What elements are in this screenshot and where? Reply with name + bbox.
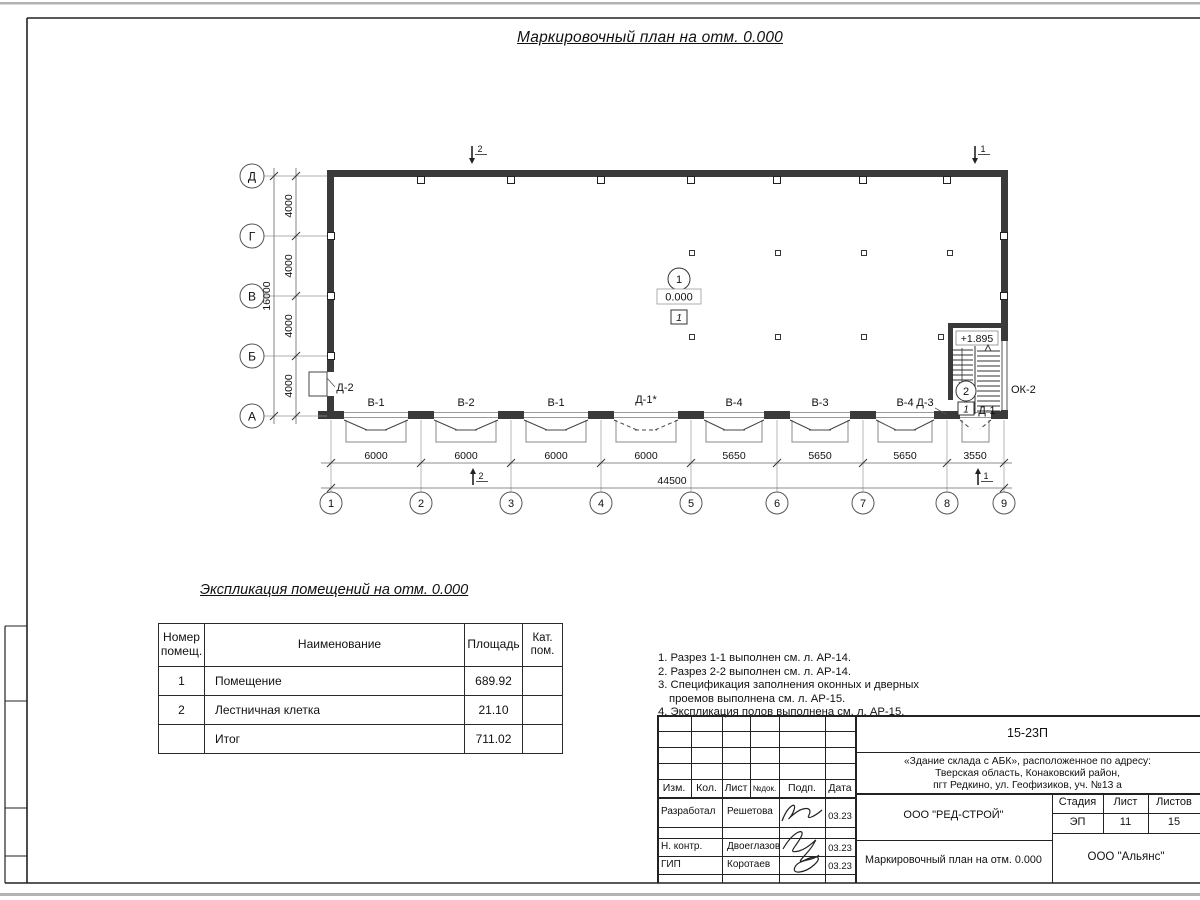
cell-name: Итог <box>205 725 465 754</box>
date-ncontrol: 03.23 <box>825 843 855 854</box>
svg-text:1: 1 <box>983 471 988 481</box>
window-sills <box>344 413 991 418</box>
axis-label: Г <box>249 230 256 244</box>
cell-name: Помещение <box>205 667 465 696</box>
axis-label: 9 <box>1001 498 1007 510</box>
note-line: 2. Разрез 2-2 выполнен см. л. АР-14. <box>658 666 919 680</box>
dim-text: 5650 <box>722 450 746 462</box>
axis-label: А <box>248 410 256 424</box>
role-ncontrol: Н. контр. <box>661 841 702 852</box>
dim-total-left: 16000 <box>261 281 273 310</box>
design-company: ООО "РЕД-СТРОЙ" <box>855 809 1052 821</box>
dim-text: 5650 <box>808 450 832 462</box>
cell-category <box>523 667 563 696</box>
col-list: Лист <box>722 782 750 794</box>
door-d1-label: Д-1 <box>978 405 995 417</box>
porch-d2 <box>309 372 327 396</box>
top-wall <box>327 170 1008 177</box>
project-address-line2: Тверская область, Конаковский район, <box>855 768 1200 779</box>
dim-text: 6000 <box>364 450 388 462</box>
room-floor-type: 1 <box>676 312 682 324</box>
axis-label: 8 <box>944 498 950 510</box>
room-table-title: Экспликация помещений на отм. 0.000 <box>200 582 468 598</box>
table-header-row: Номерпомещ. Наименование Площадь Кат.пом… <box>159 624 563 667</box>
svg-text:2: 2 <box>478 471 483 481</box>
signature-developed <box>782 805 822 821</box>
door-d3-label: Д-3 <box>916 397 933 409</box>
note-line: проемов выполнена см. л. АР-15. <box>658 693 919 707</box>
dim-text: 6000 <box>544 450 568 462</box>
date-gip: 03.23 <box>825 861 855 872</box>
doc-number: 15-23П <box>855 726 1200 740</box>
note-line: 1. Разрез 1-1 выполнен см. л. АР-14. <box>658 652 919 666</box>
opening-label: В-2 <box>457 397 474 409</box>
name-ncontrol: Двоеглазов <box>727 841 780 852</box>
svg-text:1: 1 <box>980 144 985 154</box>
dim-text: 4000 <box>283 374 295 398</box>
sheets-value: 15 <box>1148 816 1200 828</box>
door-d2-label: Д-2 <box>336 382 353 394</box>
axis-label: 4 <box>598 498 604 510</box>
contractor-org: ООО "Альянс" <box>1052 851 1200 863</box>
page-title: Маркировочный план на отм. 0.000 <box>400 29 900 47</box>
axis-label: В <box>248 290 256 304</box>
opening-label: Д-1* <box>635 394 657 406</box>
role-gip: ГИП <box>661 859 681 870</box>
cell-number: 1 <box>159 667 205 696</box>
cell-name: Лестничная клетка <box>205 696 465 725</box>
section-mark-1-top: 1 <box>972 144 990 164</box>
opening-label: В-1 <box>367 397 384 409</box>
axis-label: 6 <box>774 498 780 510</box>
signatures <box>779 797 825 883</box>
cell-area: 21.10 <box>465 696 523 725</box>
col-header-name: Наименование <box>205 624 465 667</box>
sheets-label: Листов <box>1148 796 1200 808</box>
col-izm: Изм. <box>657 782 691 794</box>
window-ok2-label: ОК-2 <box>1011 384 1036 396</box>
project-address-line3: пгт Редкино, ул. Геофизиков, уч. №13 а <box>855 780 1200 791</box>
room-number: 1 <box>676 274 682 286</box>
dimension-lines <box>274 168 1012 488</box>
axis-label: 2 <box>418 498 424 510</box>
drawing-sheet: { "page": { "main_title": "Маркировочный… <box>0 0 1200 900</box>
section-mark-2-top: 2 <box>469 144 487 164</box>
date-developed: 03.23 <box>825 811 855 822</box>
cell-area: 689.92 <box>465 667 523 696</box>
room1-markers: 1 0.000 1 <box>657 268 701 324</box>
section-marks: 2 1 2 1 <box>469 144 993 485</box>
axis-label: 7 <box>860 498 866 510</box>
left-wall-upper <box>327 170 334 372</box>
table-row-total: Итог 711.02 <box>159 725 563 754</box>
axis-label: 1 <box>328 498 334 510</box>
col-ndok: №док. <box>750 784 779 793</box>
stair-floor-type: 1 <box>963 405 969 416</box>
dim-total-bottom: 44500 <box>657 475 686 487</box>
stage-value: ЭП <box>1052 816 1103 828</box>
col-kol: Кол. <box>691 782 722 794</box>
signature-ncontrol-gip <box>783 832 819 872</box>
opening-label: В-1 <box>547 397 564 409</box>
col-header-category: Кат.пом. <box>523 624 563 667</box>
sheet-title: Маркировочный план на отм. 0.000 <box>855 854 1052 866</box>
dim-text: 3550 <box>963 450 987 462</box>
window-symbols <box>344 420 991 430</box>
room-elevation: 0.000 <box>665 292 693 304</box>
dim-text: 4000 <box>283 254 295 278</box>
format-strip <box>5 626 27 883</box>
cell-number <box>159 725 205 754</box>
dim-text: 5650 <box>893 450 917 462</box>
room-explication-table: Номерпомещ. Наименование Площадь Кат.пом… <box>158 623 563 754</box>
stair-room-number: 2 <box>963 386 969 398</box>
name-gip: Коротаев <box>727 859 770 870</box>
dimension-ticks <box>270 172 1008 492</box>
svg-text:2: 2 <box>477 144 482 154</box>
dim-text: 6000 <box>634 450 658 462</box>
cell-number: 2 <box>159 696 205 725</box>
axis-label: 5 <box>688 498 694 510</box>
dim-text: 4000 <box>283 194 295 218</box>
cell-category <box>523 696 563 725</box>
col-podp: Подп. <box>779 782 825 794</box>
section-mark-2-bottom: 2 <box>470 468 488 485</box>
columns <box>328 177 1008 360</box>
axis-bubbles-bottom: 1 2 3 4 5 6 7 8 9 <box>320 492 1015 514</box>
sheet-label: Лист <box>1103 796 1148 808</box>
note-line: 3. Спецификация заполнения оконных и две… <box>658 679 919 693</box>
stage-label: Стадия <box>1052 796 1103 808</box>
dimension-texts: 6000 6000 6000 6000 5650 5650 5650 3550 … <box>261 194 987 487</box>
right-wall-upper <box>1001 170 1008 341</box>
dim-text: 4000 <box>283 314 295 338</box>
sheet-value: 11 <box>1103 816 1148 828</box>
col-header-number: Номерпомещ. <box>159 624 205 667</box>
name-developed: Решетова <box>727 806 773 817</box>
title-block: 15-23П «Здание склада с АБК», расположен… <box>657 715 1200 883</box>
col-data: Дата <box>825 782 855 794</box>
stair-elevation: +1.895 <box>961 333 994 345</box>
table-row: 2 Лестничная клетка 21.10 <box>159 696 563 725</box>
axis-label: Б <box>248 350 256 364</box>
axis-label: Д <box>248 170 256 184</box>
staircase: +1.895 2 1 <box>948 323 1001 416</box>
opening-label: В-3 <box>811 397 828 409</box>
table-row: 1 Помещение 689.92 <box>159 667 563 696</box>
dim-text: 6000 <box>454 450 478 462</box>
project-address-line1: «Здание склада с АБК», расположенное по … <box>855 756 1200 767</box>
axis-label: 3 <box>508 498 514 510</box>
col-header-area: Площадь <box>465 624 523 667</box>
extension-lines <box>264 176 1004 492</box>
opening-label: В-4 <box>896 397 913 409</box>
general-notes: 1. Разрез 1-1 выполнен см. л. АР-14. 2. … <box>658 652 919 720</box>
opening-label: В-4 <box>725 397 742 409</box>
section-mark-1-bottom: 1 <box>975 468 993 485</box>
cell-category <box>523 725 563 754</box>
role-developed: Разработал <box>661 806 715 817</box>
cell-area: 711.02 <box>465 725 523 754</box>
